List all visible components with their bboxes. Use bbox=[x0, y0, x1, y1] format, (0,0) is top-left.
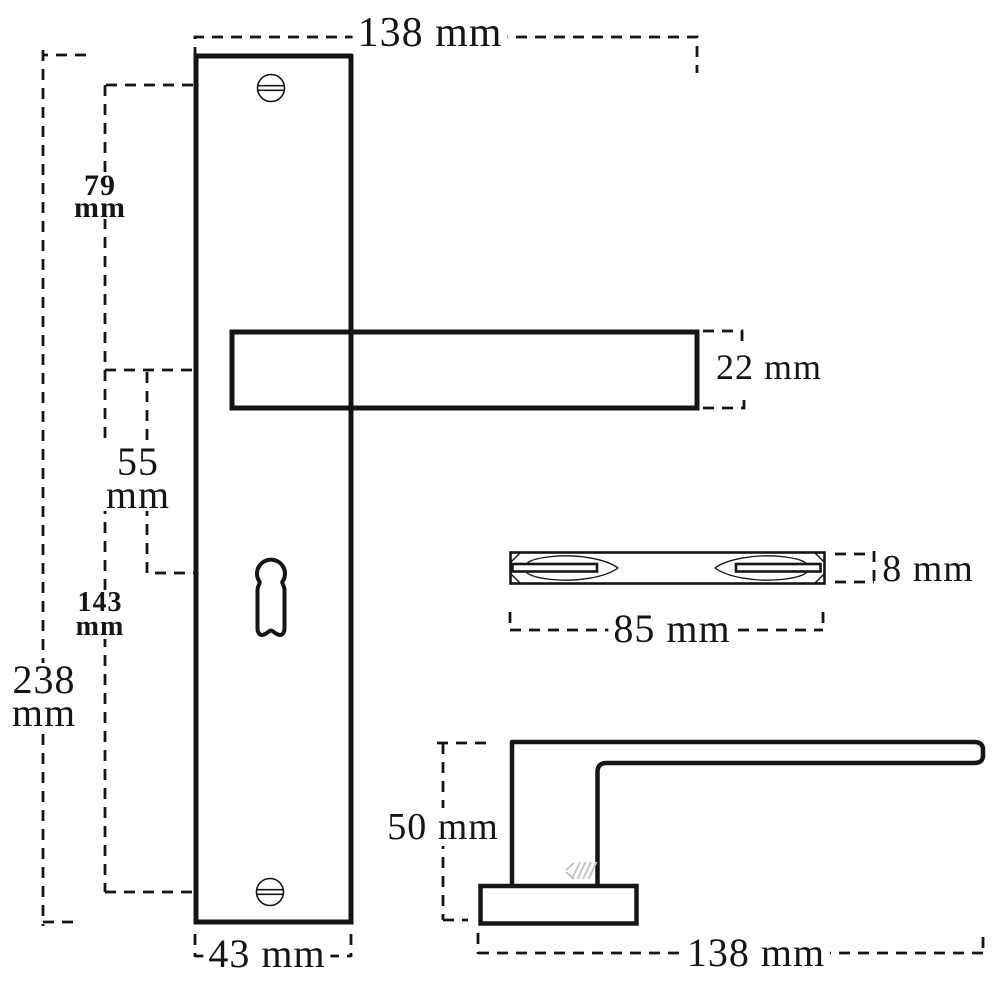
top-screw-icon bbox=[258, 75, 285, 102]
profile-top-view bbox=[511, 553, 825, 584]
bottom-screw-icon bbox=[257, 879, 284, 906]
dim-label-plate-height: 238 mm bbox=[7, 663, 81, 729]
rose-base-side bbox=[481, 886, 637, 924]
dim-label-top-screw-to-lever: 79 mm bbox=[69, 175, 131, 219]
left-screw-slot bbox=[513, 564, 598, 572]
dim-label-plate-width: 43 mm bbox=[203, 934, 330, 974]
front-view bbox=[196, 56, 697, 922]
right-screw-slot bbox=[736, 564, 821, 572]
dim-label-lever-to-keyhole: 55 mm bbox=[101, 445, 175, 511]
dim-label-profile-thickness: 8 mm bbox=[877, 550, 979, 588]
dim-label-handle-height-side: 50 mm bbox=[382, 808, 504, 846]
dim-label-lever-to-bottom-screw: 143 mm bbox=[71, 591, 130, 639]
handle-side-view bbox=[481, 742, 984, 924]
lever-front-view bbox=[232, 332, 697, 408]
keyhole-icon bbox=[257, 560, 285, 635]
backplate-fill bbox=[196, 56, 351, 922]
dim-label-handle-length-side: 138 mm bbox=[682, 933, 830, 973]
dim-label-profile-length: 85 mm bbox=[608, 609, 735, 649]
dim-label-lever-thickness: 22 mm bbox=[711, 349, 827, 385]
dim-label-lever-length-top: 138 mm bbox=[353, 12, 508, 54]
dimension-drawing: 138 mm 22 mm 79 mm 55 mm 143 mm 238 mm 4… bbox=[0, 0, 1000, 1000]
dim-line-profile-thickness bbox=[835, 551, 874, 585]
